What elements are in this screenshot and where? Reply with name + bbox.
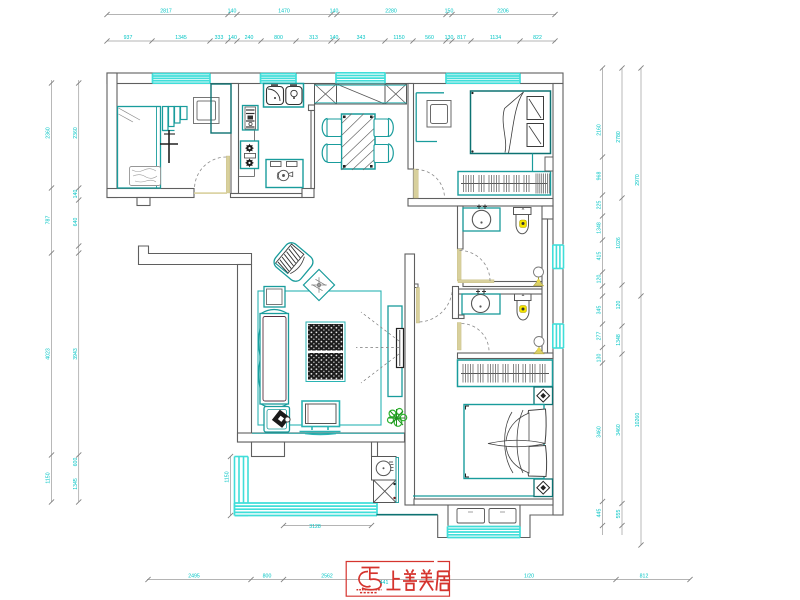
svg-text:812: 812 — [640, 574, 649, 580]
svg-text:1/20: 1/20 — [524, 574, 534, 580]
svg-text:2817: 2817 — [160, 9, 172, 15]
svg-text:1026: 1026 — [616, 237, 622, 249]
svg-text:140: 140 — [330, 35, 339, 41]
svg-text:445: 445 — [597, 509, 603, 518]
svg-text:1348: 1348 — [616, 334, 622, 346]
svg-text:600: 600 — [73, 458, 79, 467]
svg-text:817: 817 — [457, 35, 466, 41]
svg-text:1470: 1470 — [278, 9, 290, 15]
svg-text:333: 333 — [215, 35, 224, 41]
svg-text:345: 345 — [597, 306, 603, 315]
svg-text:120: 120 — [597, 275, 603, 284]
svg-text:2970: 2970 — [635, 174, 641, 186]
svg-text:560: 560 — [425, 35, 434, 41]
svg-text:150: 150 — [445, 9, 454, 15]
svg-text:3943: 3943 — [73, 348, 79, 360]
svg-text:787: 787 — [46, 216, 52, 225]
svg-text:130: 130 — [445, 35, 454, 41]
svg-text:2562: 2562 — [321, 574, 333, 580]
svg-text:140: 140 — [330, 9, 339, 15]
svg-text:2780: 2780 — [616, 131, 622, 143]
svg-text:2360: 2360 — [73, 127, 79, 139]
svg-text:140: 140 — [228, 35, 237, 41]
svg-text:2160: 2160 — [597, 124, 603, 136]
svg-text:937: 937 — [124, 35, 133, 41]
svg-text:2280: 2280 — [385, 9, 397, 15]
svg-text:240: 240 — [245, 35, 254, 41]
svg-text:2206: 2206 — [497, 9, 509, 15]
svg-text:800: 800 — [274, 35, 283, 41]
svg-text:10260: 10260 — [635, 413, 641, 428]
svg-text:1345: 1345 — [73, 478, 79, 490]
svg-text:2495: 2495 — [188, 574, 200, 580]
svg-text:1345: 1345 — [175, 35, 187, 41]
svg-text:640: 640 — [73, 218, 79, 227]
svg-text:3460: 3460 — [597, 426, 603, 438]
svg-text:441: 441 — [380, 580, 389, 586]
svg-text:2360: 2360 — [46, 127, 52, 139]
svg-text:415: 415 — [597, 252, 603, 261]
svg-text:968: 968 — [597, 172, 603, 181]
svg-text:555: 555 — [616, 510, 622, 519]
svg-text:120: 120 — [616, 301, 622, 310]
svg-text:277: 277 — [597, 332, 603, 341]
svg-text:800: 800 — [263, 574, 272, 580]
svg-text:3128: 3128 — [309, 524, 321, 530]
svg-text:343: 343 — [357, 35, 366, 41]
svg-text:140: 140 — [228, 9, 237, 15]
svg-text:1348: 1348 — [597, 222, 603, 234]
svg-text:130: 130 — [597, 354, 603, 363]
svg-text:4023: 4023 — [46, 348, 52, 360]
svg-text:822: 822 — [533, 35, 542, 41]
svg-text:225: 225 — [597, 201, 603, 210]
svg-text:1134: 1134 — [490, 35, 501, 41]
svg-text:313: 313 — [309, 35, 318, 41]
svg-text:1150: 1150 — [225, 471, 231, 482]
svg-text:3460: 3460 — [616, 424, 622, 436]
svg-text:1150: 1150 — [46, 472, 52, 483]
svg-text:140: 140 — [73, 190, 79, 199]
svg-text:1150: 1150 — [393, 35, 404, 41]
